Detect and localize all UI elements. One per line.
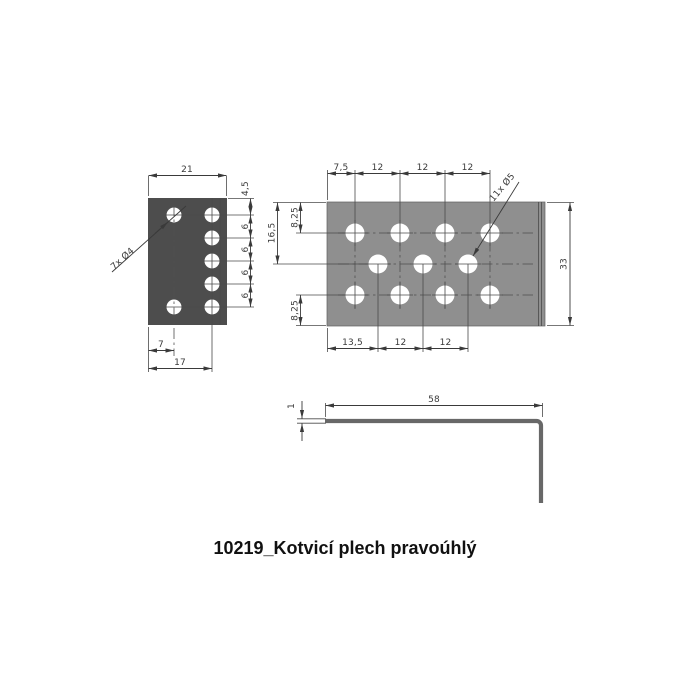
dim-plate-left-outer: 16,5	[268, 223, 278, 244]
profile-view: 58 1	[287, 395, 543, 503]
dim-flange-pitch-3: 6	[241, 269, 251, 275]
plate-view: 7,5 12 12 12 8,25 16,5 8,25	[268, 163, 575, 352]
dim-plate-top-2: 12	[417, 163, 429, 173]
plate-hole-count-label: 11x Ø5	[487, 171, 517, 204]
dim-profile-length: 58	[428, 395, 440, 405]
technical-drawing: 21 4,5 6 6 6 6 7 17 7x Ø4	[0, 0, 700, 700]
plate-height-dimension: 33	[547, 203, 574, 326]
drawing-canvas: 21 4,5 6 6 6 6 7 17 7x Ø4	[0, 0, 700, 700]
dim-plate-height: 33	[560, 258, 570, 270]
dim-plate-top-0: 7,5	[334, 163, 349, 173]
dim-flange-pitch-2: 6	[241, 246, 251, 252]
dim-plate-left-top: 8,25	[291, 207, 301, 228]
dim-flange-pitch-4: 6	[241, 292, 251, 298]
drawing-title: 10219_Kotvicí plech pravoúhlý	[213, 538, 476, 558]
dim-profile-thickness: 1	[287, 403, 297, 409]
profile-section	[325, 421, 541, 503]
dim-plate-bottom-0: 13,5	[342, 338, 363, 348]
profile-thickness-dimension: 1	[287, 401, 326, 441]
dim-plate-top-1: 12	[372, 163, 384, 173]
dim-flange-width: 21	[181, 165, 193, 175]
dim-flange-hole-offset: 7	[158, 340, 164, 350]
dim-flange-hole-span: 17	[174, 358, 186, 368]
flange-view: 21 4,5 6 6 6 6 7 17 7x Ø4	[109, 165, 254, 372]
dim-flange-pitch-1: 6	[241, 223, 251, 229]
dim-plate-bottom-1: 12	[395, 338, 407, 348]
flange-hole-count-label: 7x Ø4	[109, 245, 137, 272]
dim-plate-left-bottom: 8,25	[291, 300, 301, 321]
profile-length-dimension: 58	[326, 395, 543, 417]
dim-plate-top-3: 12	[462, 163, 474, 173]
dim-plate-bottom-2: 12	[440, 338, 452, 348]
dim-flange-edge-offset: 4,5	[241, 181, 251, 196]
